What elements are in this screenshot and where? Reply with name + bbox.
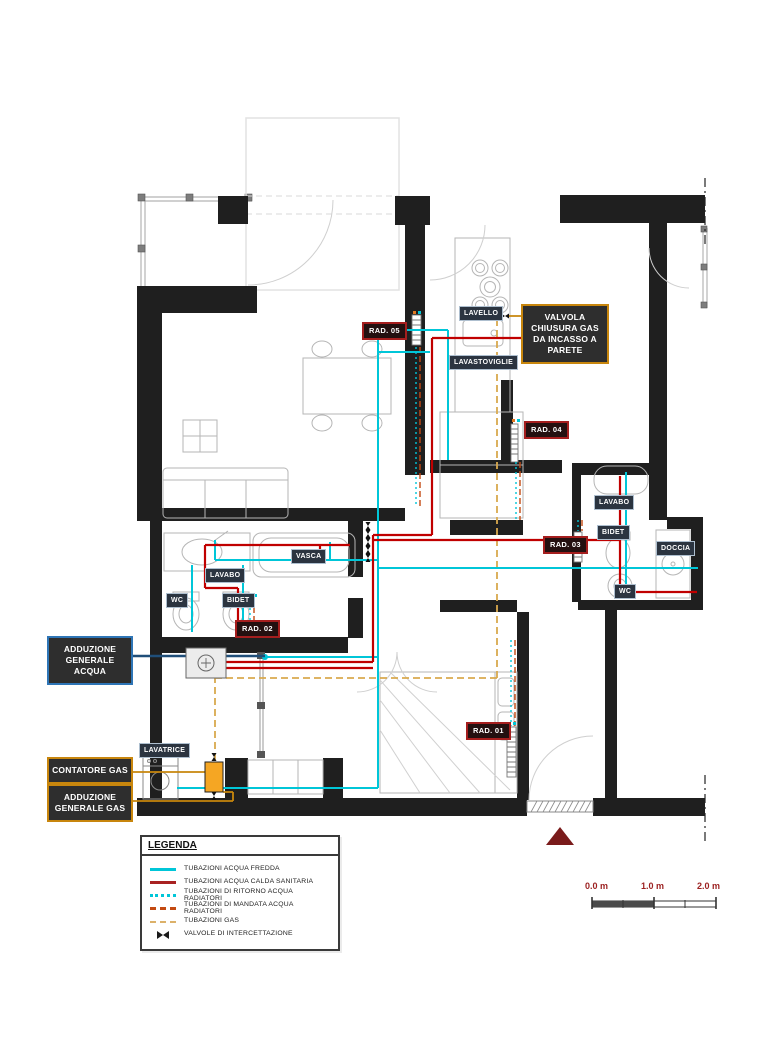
entrance-threshold [527, 801, 593, 812]
hot-water-line-swatch [150, 881, 176, 884]
legend-item-gas: TUBAZIONI GAS [148, 915, 332, 928]
radiator-return-line-swatch [150, 894, 176, 897]
label-wc-sx: WC [166, 593, 188, 608]
legend-title: LEGENDA [142, 837, 338, 856]
label-lavello: LAVELLO [459, 306, 503, 321]
callout-adduzione-generale-gas: ADDUZIONE GENERALE GAS [47, 784, 133, 822]
label-rad-01: RAD. 01 [466, 722, 511, 740]
scale-bar: 0.0 m 1.0 m 2.0 m [583, 882, 723, 916]
boiler [186, 648, 226, 678]
label-bidet-dx: BIDET [597, 525, 630, 540]
scale-label-0: 0.0 m [585, 882, 608, 891]
radiator-supply-line-swatch [150, 907, 176, 910]
gas-meter [205, 762, 223, 792]
floor-plan-page: RAD. 05 LAVELLO LAVASTOVIGLIE RAD. 04 LA… [0, 0, 768, 1048]
callout-adduzione-generale-acqua: ADDUZIONE GENERALE ACQUA [47, 636, 133, 685]
label-wc-dx: WC [614, 584, 636, 599]
label-lavabo-dx: LAVABO [594, 495, 634, 510]
label-bidet-sx: BIDET [222, 593, 255, 608]
label-vasca: VASCA [291, 549, 326, 564]
callout-contatore-gas: CONTATORE GAS [47, 757, 133, 784]
legend-item-acqua-fredda: TUBAZIONI ACQUA FREDDA [148, 863, 332, 876]
label-rad-03: RAD. 03 [543, 536, 588, 554]
terrace-outline [246, 118, 399, 290]
label-rad-04: RAD. 04 [524, 421, 569, 439]
label-lavastoviglie: LAVASTOVIGLIE [449, 355, 518, 370]
legend-item-valvole: VALVOLE DI INTERCETTAZIONE [148, 928, 332, 941]
legend-item-mandata-radiatori: TUBAZIONI DI MANDATA ACQUA RADIATORI [148, 902, 332, 915]
scale-bar-graphic [583, 896, 723, 912]
callout-valvola-chiusura-gas: VALVOLA CHIUSURA GAS DA INCASSO A PARETE [521, 304, 609, 364]
label-rad-02: RAD. 02 [235, 620, 280, 638]
scale-label-1: 1.0 m [641, 882, 664, 891]
label-doccia: DOCCIA [656, 541, 695, 556]
gas-line-swatch [150, 921, 176, 923]
entrance-marker-triangle [546, 827, 574, 845]
label-lavabo-sx: LAVABO [205, 568, 245, 583]
label-rad-05: RAD. 05 [362, 322, 407, 340]
legend: LEGENDA TUBAZIONI ACQUA FREDDA TUBAZIONI… [140, 835, 340, 951]
cold-water-line-swatch [150, 868, 176, 871]
scale-label-2: 2.0 m [697, 882, 720, 891]
label-lavatrice: LAVATRICE [139, 743, 190, 758]
valve-icon [150, 931, 176, 939]
